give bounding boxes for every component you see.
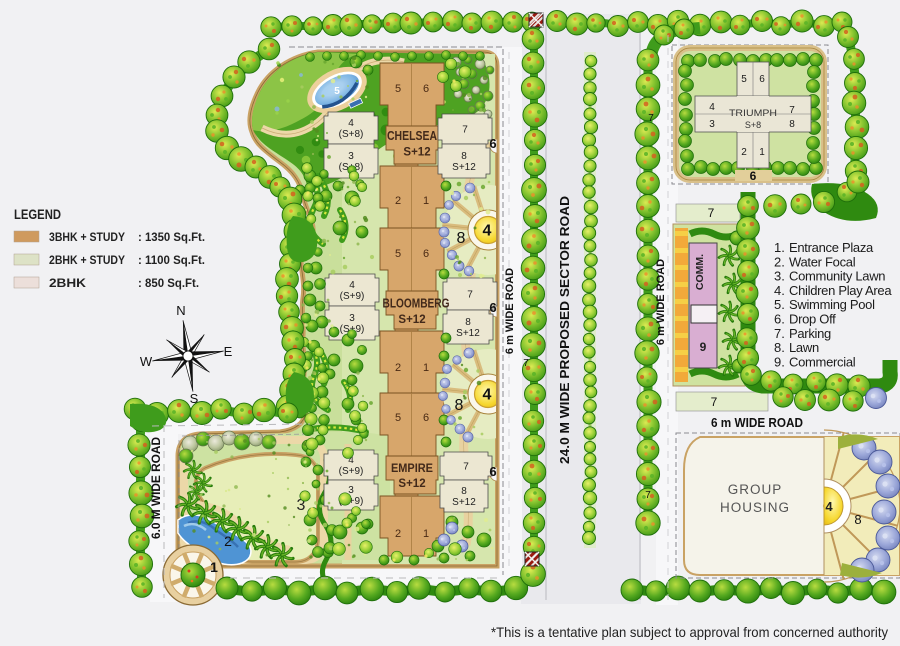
svg-text:8.: 8. [774,340,785,355]
svg-text:4.: 4. [774,283,785,298]
svg-text:5: 5 [395,412,401,424]
svg-text:Entrance Plaza: Entrance Plaza [789,240,874,255]
svg-text:1: 1 [210,559,218,575]
svg-text:S+12: S+12 [398,314,425,326]
svg-text:CHELSEA: CHELSEA [387,129,437,143]
svg-text:6 m WIDE ROAD: 6 m WIDE ROAD [711,416,803,430]
svg-text:4: 4 [483,387,492,404]
svg-text:4: 4 [709,102,715,113]
svg-text:S+12: S+12 [452,162,476,173]
svg-text:9: 9 [700,340,707,354]
svg-text:8: 8 [455,397,464,414]
svg-text:5: 5 [395,83,401,95]
svg-text:7: 7 [523,358,529,369]
svg-text:5: 5 [741,74,747,85]
svg-text:Lawn: Lawn [789,340,819,355]
svg-text:E: E [224,344,233,359]
svg-text:HOUSING: HOUSING [720,500,790,515]
svg-text:2: 2 [395,528,401,540]
svg-text:5: 5 [395,248,401,260]
svg-text:Children Play Area: Children Play Area [789,283,892,298]
svg-text:7: 7 [708,206,715,220]
svg-text:7: 7 [789,105,795,116]
svg-text:3: 3 [709,119,715,130]
svg-text:(S+9): (S+9) [339,466,364,477]
svg-text:S+12: S+12 [403,147,430,159]
svg-text:4: 4 [349,280,355,291]
svg-text:4: 4 [825,499,833,514]
svg-text:1: 1 [759,147,765,158]
svg-text:6: 6 [423,412,429,424]
svg-text:4: 4 [483,223,492,240]
svg-text:6: 6 [423,83,429,95]
svg-text:6.: 6. [774,312,785,327]
svg-text:24.0 M WIDE PROPOSED SECTOR RO: 24.0 M WIDE PROPOSED SECTOR ROAD [558,196,572,464]
svg-text:Water Focal: Water Focal [789,254,856,269]
svg-text:3BHK + STUDY: 3BHK + STUDY [49,230,125,244]
svg-text:1: 1 [423,362,429,374]
svg-text:7: 7 [463,462,469,473]
svg-text:6.0 M WIDE ROAD: 6.0 M WIDE ROAD [149,437,163,539]
svg-text:7: 7 [462,125,468,136]
svg-text:8: 8 [789,119,795,130]
svg-text:S+12: S+12 [398,478,425,490]
svg-text:6: 6 [750,169,757,183]
svg-text:8: 8 [854,512,861,527]
svg-text:3: 3 [349,313,355,324]
svg-text:2: 2 [395,362,401,374]
svg-text:(S+9): (S+9) [340,291,365,302]
svg-text:TRIUMPH: TRIUMPH [729,108,777,119]
svg-text:8: 8 [461,151,467,162]
svg-text:7.: 7. [774,326,785,341]
svg-text:S+12: S+12 [452,497,476,508]
svg-text:6: 6 [489,136,496,151]
svg-text:: 850 Sq.Ft.: : 850 Sq.Ft. [138,276,199,290]
svg-text:4: 4 [348,118,354,129]
svg-text:(S+8): (S+8) [339,129,364,140]
svg-text:Parking: Parking [789,326,831,341]
svg-text:6: 6 [423,248,429,260]
svg-text:8: 8 [461,486,467,497]
svg-text:Drop Off: Drop Off [789,312,836,327]
svg-text:GROUP: GROUP [728,482,783,497]
svg-text:W: W [140,354,153,369]
svg-text:1: 1 [423,528,429,540]
svg-text:3: 3 [348,151,354,162]
svg-text:6 m WIDE ROAD: 6 m WIDE ROAD [504,268,516,354]
svg-text:2: 2 [224,533,232,549]
svg-text:: 1350 Sq.Ft.: : 1350 Sq.Ft. [138,230,205,244]
svg-text:9.: 9. [774,354,785,369]
svg-text:8: 8 [457,230,466,247]
svg-text:7: 7 [645,490,651,501]
svg-text:2.: 2. [774,254,785,269]
svg-text:7: 7 [711,395,718,409]
svg-text:: 1100 Sq.Ft.: : 1100 Sq.Ft. [138,253,205,267]
svg-text:7: 7 [648,113,654,124]
svg-text:8: 8 [465,317,471,328]
svg-text:6: 6 [759,74,765,85]
svg-text:5.: 5. [774,297,785,312]
svg-text:Swimming Pool: Swimming Pool [789,297,875,312]
svg-text:7: 7 [467,290,473,301]
svg-text:2BHK + STUDY: 2BHK + STUDY [49,253,125,267]
svg-text:6: 6 [489,464,496,479]
svg-text:Commercial: Commercial [789,354,856,369]
svg-text:2: 2 [395,195,401,207]
svg-text:1: 1 [423,195,429,207]
svg-text:S+8: S+8 [745,120,761,130]
svg-text:BLOOMBERG: BLOOMBERG [383,297,450,311]
svg-text:6: 6 [489,300,496,315]
svg-text:6 m WIDE ROAD: 6 m WIDE ROAD [655,259,667,345]
svg-text:COMM.: COMM. [694,254,706,290]
svg-text:1.: 1. [774,240,785,255]
svg-text:S: S [190,391,199,406]
svg-text:2: 2 [741,147,747,158]
svg-text:3.: 3. [774,269,785,284]
svg-text:N: N [176,303,185,318]
svg-text:EMPIRE: EMPIRE [391,461,433,475]
svg-text:2BHK: 2BHK [49,276,86,290]
svg-text:5: 5 [334,86,340,97]
svg-text:LEGEND: LEGEND [14,207,61,222]
svg-text:Community Lawn: Community Lawn [789,269,885,284]
svg-text:S+12: S+12 [456,328,480,339]
svg-text:*This is a tentative plan subj: *This is a tentative plan subject to app… [491,624,888,640]
